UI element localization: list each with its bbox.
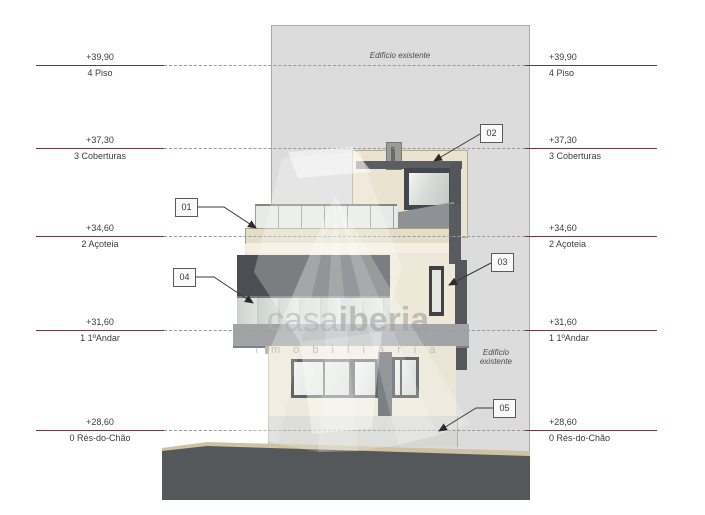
level-line-right <box>525 148 657 149</box>
level-line-right <box>525 65 657 66</box>
level-label: 2 Açoteia <box>549 239 679 250</box>
balcony-floor-slab <box>233 324 469 348</box>
existing-building-label-side-line1: Edifício <box>465 348 527 357</box>
level-line-left <box>36 65 164 66</box>
level-value: +28,60 <box>549 417 679 428</box>
level-label: 1 1ºAndar <box>549 333 679 344</box>
callout-02: 02 <box>480 124 503 143</box>
level-line-dashed <box>164 65 525 66</box>
level-label: 2 Açoteia <box>36 239 164 250</box>
level-line-left <box>36 330 164 331</box>
ground-floor-window-large <box>291 359 352 398</box>
balcony-glass-balustrade <box>237 296 390 327</box>
level-value: +31,60 <box>549 317 679 328</box>
window-glazing <box>395 360 416 395</box>
facade-pilaster <box>378 352 392 418</box>
level-value: +31,60 <box>36 317 164 328</box>
level-label: 0 Rés-do-Chão <box>36 433 164 444</box>
narrow-window-glazing <box>432 270 441 312</box>
ground-floor-window-right <box>392 357 419 398</box>
window-mullion <box>323 362 325 395</box>
window-glazing <box>355 362 375 395</box>
level-label: 0 Rés-do-Chão <box>549 433 679 444</box>
level-value: +37,30 <box>549 135 679 146</box>
level-line-right <box>525 236 657 237</box>
level-line-dashed <box>164 430 525 431</box>
level-line-left <box>36 236 164 237</box>
level-value: +34,60 <box>549 223 679 234</box>
level-label: 3 Coberturas <box>549 151 679 162</box>
rooftop-glass-enclosure-glazing <box>409 173 449 205</box>
level-value: +34,60 <box>36 223 164 234</box>
level-line-dashed <box>164 330 525 331</box>
window-glazing <box>294 362 349 395</box>
level-line-right <box>525 330 657 331</box>
existing-building-label-side-line2: existente <box>465 357 527 366</box>
level-value: +39,90 <box>36 52 164 63</box>
level-line-left <box>36 430 164 431</box>
level-line-right <box>525 430 657 431</box>
side-wall-strip-upper <box>449 204 461 264</box>
callout-03: 03 <box>491 253 514 272</box>
level-line-dashed <box>164 148 525 149</box>
ground-floor-window-small <box>352 359 378 398</box>
level-label: 4 Piso <box>36 68 164 79</box>
level-label: 3 Coberturas <box>36 151 164 162</box>
level-value: +37,30 <box>36 135 164 146</box>
callout-01: 01 <box>175 198 198 217</box>
level-label: 1 1ºAndar <box>36 333 164 344</box>
elevation-drawing-canvas: Edifício existente Edifício existente <box>0 0 705 515</box>
callout-04: 04 <box>173 268 196 287</box>
callout-05: 05 <box>493 399 516 418</box>
level-line-left <box>36 148 164 149</box>
existing-building-label-side: Edifício existente <box>465 348 527 366</box>
existing-building-label-top: Edifício existente <box>330 51 470 60</box>
window-mullion <box>400 360 402 395</box>
level-label: 4 Piso <box>549 68 679 79</box>
base-plinth <box>268 416 458 447</box>
level-line-dashed <box>164 236 525 237</box>
acoteia-light-strip <box>246 243 456 253</box>
level-value: +28,60 <box>36 417 164 428</box>
level-value: +39,90 <box>549 52 679 63</box>
